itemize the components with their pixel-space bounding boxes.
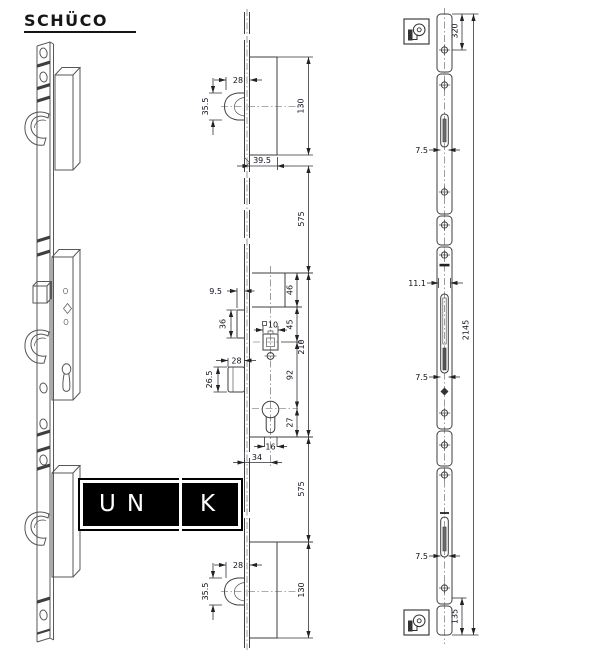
euro-cylinder-hole	[62, 364, 71, 392]
top-hook-case	[55, 68, 80, 171]
dim-label-follower-square: 10	[268, 321, 278, 330]
dim-label-slot-clearance-bottom: 7.5	[415, 552, 428, 561]
faceplate-cut-bands	[37, 61, 50, 635]
bottom-dimensions: 130 28 35.5	[201, 542, 313, 638]
dim-label-slot-clearance-mid: 7.5	[415, 373, 428, 382]
follower-knob	[33, 282, 51, 304]
dim-label-tab-projection: 9.5	[209, 287, 222, 296]
dim-label-slot-width: 16	[265, 443, 275, 452]
left-lock-illustration	[25, 42, 80, 642]
dim-label-case-length: 210	[297, 339, 306, 354]
dim-label-hook-height-bottom: 35.5	[201, 583, 210, 601]
dim-label-hook-height-top: 35.5	[201, 98, 210, 116]
unik-logo-letters-right: K	[200, 490, 215, 516]
dim-label-case-height-bottom: 130	[297, 582, 306, 597]
unik-logo-bar	[179, 471, 182, 537]
top-hook-detail	[221, 57, 303, 155]
roller-cam-detail-icon-top	[404, 19, 429, 44]
dim-label-lower-span: 575	[297, 481, 306, 496]
dim-label-top-offset: 320	[451, 23, 460, 38]
dim-label-tab-height: 36	[219, 319, 228, 329]
dim-label-latch-height: 26.5	[205, 371, 214, 389]
unik-logo-box: UN K	[83, 483, 238, 526]
dim-label-bottom-offset: 135	[451, 609, 460, 624]
dim-label-offset: 39.5	[253, 156, 271, 165]
dim-label-backset: 34	[252, 453, 262, 462]
dim-label-overall-length: 2145	[462, 320, 471, 340]
central-gear-case	[52, 250, 80, 401]
lock-technical-drawing: 130 28 35.5 39.5 575	[0, 0, 600, 650]
bottom-hook-case	[52, 466, 80, 578]
dim-label-ref-to-case: 46	[286, 285, 295, 295]
dim-label-follower-to-cylinder: 92	[286, 370, 295, 380]
faceplate-strip	[37, 42, 54, 642]
bottom-hook-detail	[221, 542, 303, 638]
dim-label-guide-width: 11.1	[408, 279, 426, 288]
dim-label-cylinder-to-ref: 27	[286, 417, 295, 427]
side-tab	[237, 310, 245, 338]
roller-cam-detail-icon-bottom	[404, 610, 429, 635]
reference-tick	[440, 264, 450, 267]
middle-section-view: 130 28 35.5 39.5 575	[201, 9, 313, 650]
top-dimensions: 130 28 35.5 39.5 575	[201, 57, 313, 273]
dim-label-hook-projection-top: 28	[233, 76, 243, 85]
square-symbol-icon	[263, 322, 267, 326]
dim-label-latch-projection: 28	[231, 357, 241, 366]
unik-logo: UN K	[78, 478, 243, 531]
dim-label-slot-clearance-top: 7.5	[415, 146, 428, 155]
dim-label-upper-span: 575	[297, 211, 306, 226]
right-faceplate-view: 320 2145 7.5 11.1 7.5 7.5 135	[404, 8, 479, 644]
dim-label-hook-projection-bottom: 28	[233, 561, 243, 570]
fixing-point-marker	[441, 388, 449, 396]
datasheet-page: SCHÜCO	[0, 0, 600, 650]
dim-label-case-height-top: 130	[297, 98, 306, 113]
dim-label-case-to-follower: 45	[286, 319, 295, 329]
latch-bolt	[228, 367, 245, 392]
unik-logo-letters-left: UN	[99, 490, 155, 516]
